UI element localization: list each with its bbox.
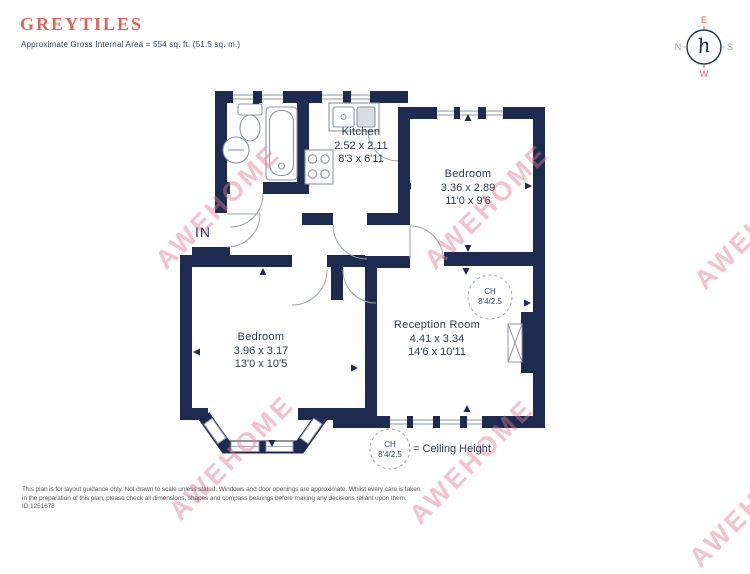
- room-name: Reception Room: [394, 319, 480, 333]
- area-subtitle: Approximate Gross Internal Area = 554 sq…: [21, 40, 240, 49]
- legend-ch-marker: CH 8'4/2.5: [378, 440, 402, 459]
- compass-east-label: E: [701, 15, 707, 25]
- alcove-icon: [508, 324, 522, 362]
- toilet-cistern-icon: [238, 104, 262, 115]
- room-imperial-dimensions: 8'3 x 6'11: [334, 153, 388, 167]
- ch-value: 8'4/2.5: [478, 297, 502, 307]
- bedroom-top-label: Bedroom 3.36 x 2.89 11'0 x 9'6: [441, 168, 495, 209]
- entrance-label: IN: [195, 224, 211, 240]
- compass-north-label: N: [675, 42, 682, 52]
- floorplan-page: { "header": { "title": "GREYTILES", "sub…: [0, 0, 750, 529]
- toilet-bowl-icon: [240, 115, 260, 141]
- disclaimer: This plan is for layout guidance only. N…: [22, 486, 452, 512]
- ch-value: 8'4/2.5: [378, 450, 402, 460]
- room-imperial-dimensions: 11'0 x 9'6: [441, 195, 495, 209]
- reception-room-label: Reception Room 4.41 x 3.34 14'6 x 10'11: [394, 319, 480, 360]
- room-metric-dimensions: 4.41 x 3.34: [394, 333, 480, 347]
- compass-south-label: S: [727, 42, 733, 52]
- kitchen-label: Kitchen 2.52 x 2.11 8'3 x 6'11: [334, 126, 388, 167]
- legend-description: = Ceiling Height: [413, 443, 491, 455]
- room-name: Kitchen: [334, 126, 388, 140]
- ceiling-height-marker: CH 8'4/2.5: [478, 287, 502, 306]
- room-metric-dimensions: 3.96 x 3.17: [234, 345, 288, 359]
- room-name: Bedroom: [441, 168, 495, 182]
- room-metric-dimensions: 2.52 x 2.11: [334, 140, 388, 154]
- ch-abbr: CH: [378, 440, 402, 450]
- room-imperial-dimensions: 13'0 x 10'5: [234, 358, 288, 372]
- disclaimer-line: in the preparation of this plan, please …: [22, 495, 452, 504]
- drainer-icon: [357, 107, 375, 127]
- room-name: Bedroom: [234, 331, 288, 345]
- disclaimer-line: This plan is for layout guidance only. N…: [22, 486, 452, 495]
- compass-west-label: W: [700, 69, 709, 79]
- stove-icon: [305, 150, 333, 184]
- floorplan-drawing: [0, 0, 750, 529]
- page-title: GREYTILES: [20, 14, 143, 35]
- plan-id: ID 1251678: [22, 503, 452, 512]
- room-imperial-dimensions: 14'6 x 10'11: [394, 346, 480, 360]
- ch-abbr: CH: [478, 287, 502, 297]
- room-metric-dimensions: 3.36 x 2.89: [441, 182, 495, 196]
- bedroom-left-label: Bedroom 3.96 x 3.17 13'0 x 10'5: [234, 331, 288, 372]
